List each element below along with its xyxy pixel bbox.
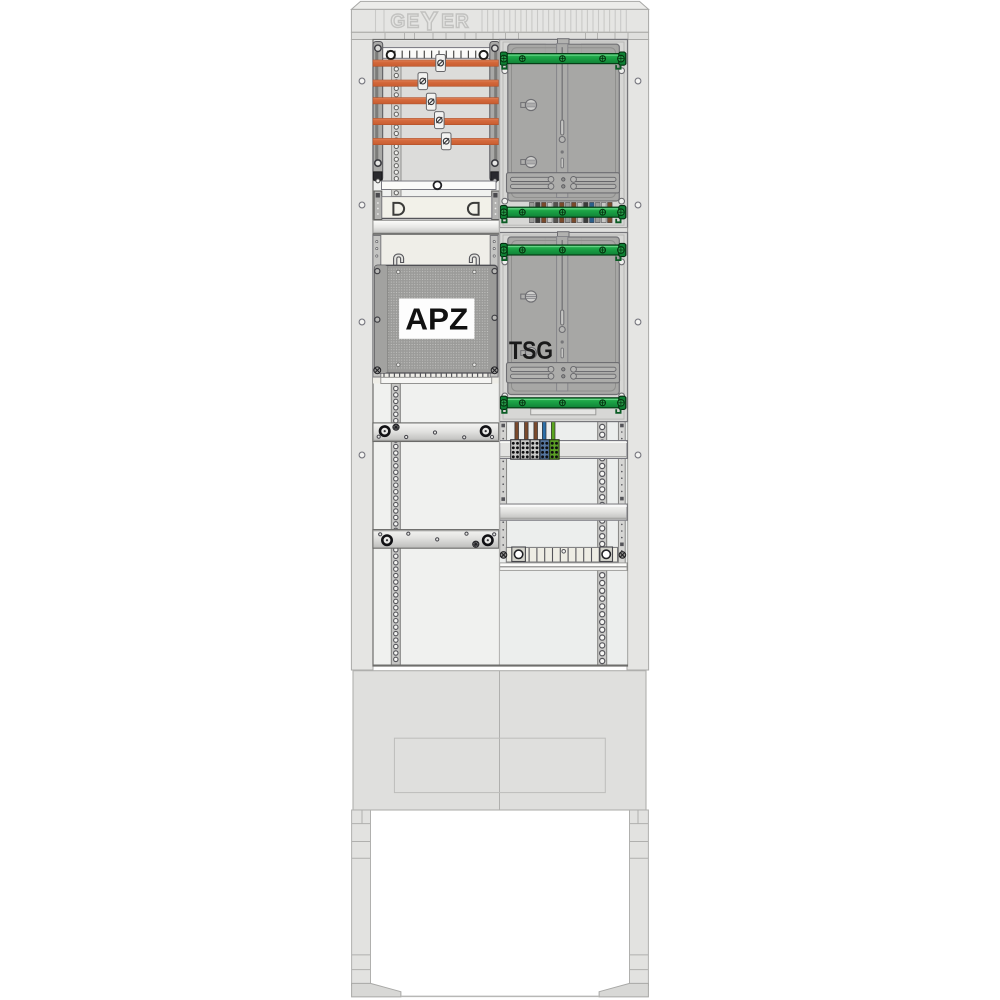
svg-text:TSG: TSG [509, 338, 553, 365]
svg-text:Y: Y [421, 6, 438, 36]
svg-text:ER: ER [441, 11, 470, 32]
svg-text:APZ: APZ [405, 301, 468, 336]
svg-text:GE: GE [391, 11, 421, 32]
